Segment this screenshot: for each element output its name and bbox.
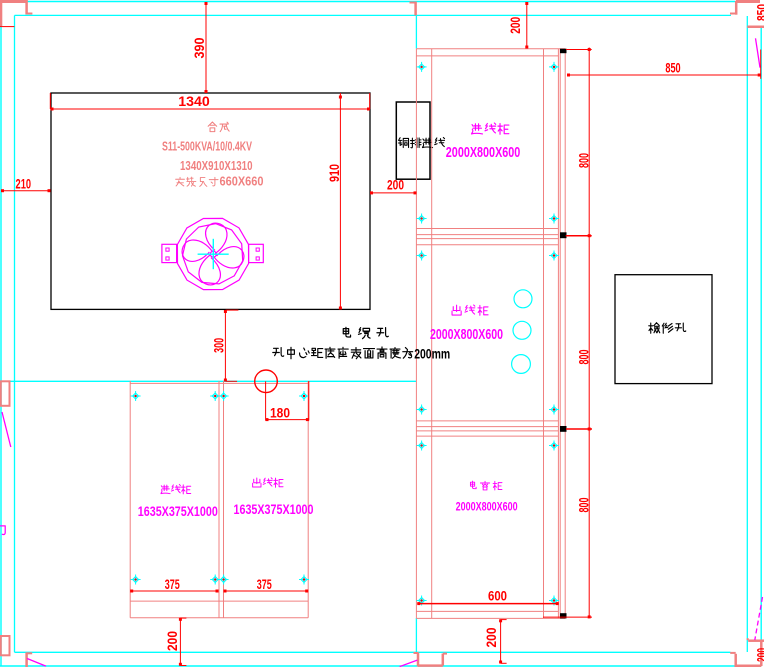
svg-text:200mm: 200mm [414, 346, 450, 362]
svg-text:390: 390 [191, 37, 207, 58]
svg-text:2000X800X600: 2000X800X600 [456, 502, 518, 514]
svg-text:375: 375 [165, 576, 180, 592]
svg-text:200: 200 [387, 177, 404, 193]
svg-text:800: 800 [576, 153, 592, 168]
svg-text:1340X910X1310: 1340X910X1310 [180, 158, 253, 173]
svg-text:210: 210 [16, 175, 32, 191]
svg-text:300: 300 [211, 338, 227, 353]
svg-text:200: 200 [507, 17, 523, 34]
svg-text:180: 180 [270, 405, 290, 421]
svg-text:200: 200 [483, 627, 499, 647]
svg-text:910: 910 [326, 164, 342, 182]
svg-text:850: 850 [665, 60, 680, 76]
svg-text:660X660: 660X660 [220, 175, 264, 189]
svg-text:800: 800 [576, 349, 592, 364]
svg-text:850: 850 [754, 4, 764, 21]
svg-text:1635X375X1000: 1635X375X1000 [234, 502, 314, 517]
svg-text:200: 200 [754, 648, 764, 662]
svg-text:800: 800 [576, 497, 592, 512]
svg-text:200: 200 [164, 631, 180, 651]
svg-text:1340: 1340 [178, 93, 210, 109]
svg-text:375: 375 [257, 576, 272, 592]
svg-text:2000X800X600: 2000X800X600 [446, 144, 521, 161]
svg-text:1635X375X1000: 1635X375X1000 [138, 504, 218, 519]
svg-text:2000X800X600: 2000X800X600 [430, 326, 503, 343]
svg-text:600: 600 [488, 587, 507, 603]
svg-text:S11-500KVA/10/0.4KV: S11-500KVA/10/0.4KV [162, 139, 252, 154]
